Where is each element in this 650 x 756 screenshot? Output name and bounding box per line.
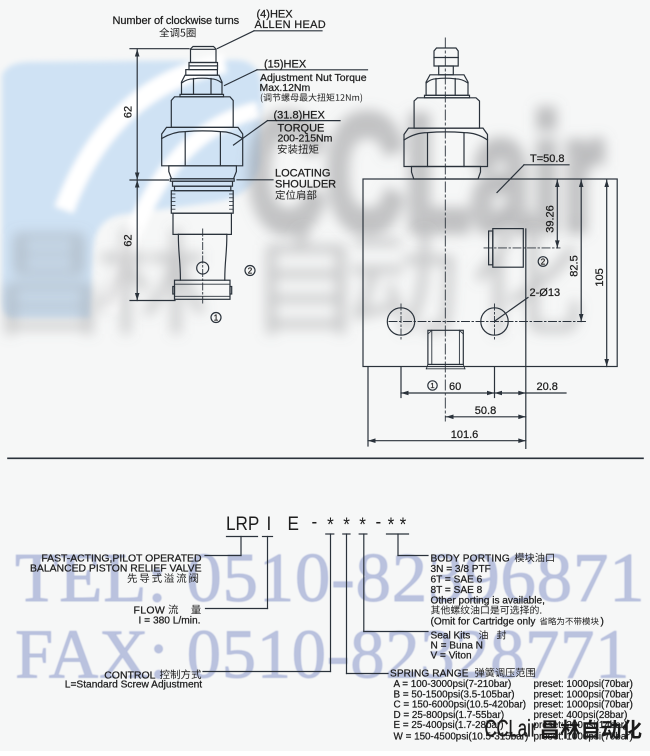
- svg-text:2-Ø13: 2-Ø13: [530, 287, 561, 299]
- svg-text:-: -: [375, 510, 381, 532]
- svg-text:Max.12Nm: Max.12Nm: [260, 82, 311, 94]
- svg-text:SHOULDER: SHOULDER: [275, 178, 336, 190]
- svg-text:BALANCED PISTON RELIEF VALVE: BALANCED PISTON RELIEF VALVE: [30, 564, 202, 575]
- svg-text:): ): [600, 616, 603, 627]
- svg-text:ALLEN HEAD: ALLEN HEAD: [255, 19, 326, 31]
- svg-text:LRP: LRP: [226, 512, 259, 534]
- svg-text:*: *: [400, 513, 407, 535]
- svg-text:I: I: [266, 512, 271, 534]
- svg-text:T=50.8: T=50.8: [530, 153, 565, 165]
- svg-text:1: 1: [214, 313, 219, 322]
- svg-text:62: 62: [123, 234, 135, 246]
- svg-text:L=Standard Screw Adjustment: L=Standard Screw Adjustment: [65, 679, 202, 690]
- svg-text:2: 2: [248, 266, 253, 275]
- svg-text:60: 60: [449, 381, 461, 393]
- svg-text:*: *: [343, 513, 350, 535]
- svg-text:SPRING RANGE: SPRING RANGE: [390, 668, 469, 679]
- svg-text:*: *: [359, 513, 366, 535]
- svg-text:(Omit for Cartridge only: (Omit for Cartridge only: [431, 616, 537, 627]
- svg-text:-: -: [312, 510, 318, 532]
- svg-text:82.5: 82.5: [569, 255, 581, 276]
- svg-text:3N = 3/8 PTF: 3N = 3/8 PTF: [431, 564, 491, 575]
- svg-text:(15)HEX: (15)HEX: [264, 58, 307, 70]
- svg-text:20.8: 20.8: [537, 381, 558, 393]
- svg-text:(31.8)HEX: (31.8)HEX: [274, 109, 326, 121]
- svg-text:105: 105: [594, 268, 606, 286]
- svg-text:200-215Nm: 200-215Nm: [278, 133, 333, 145]
- svg-text:6T = SAE 6: 6T = SAE 6: [431, 575, 483, 586]
- svg-text:50.8: 50.8: [475, 405, 496, 417]
- svg-text:101.6: 101.6: [451, 429, 479, 441]
- svg-text:2: 2: [541, 257, 546, 266]
- svg-text:62: 62: [123, 106, 135, 118]
- svg-text:Other porting is available,: Other porting is available,: [431, 595, 545, 606]
- svg-text:I = 380 L/min.: I = 380 L/min.: [139, 615, 201, 626]
- svg-text:E: E: [287, 512, 298, 534]
- svg-text:*: *: [388, 513, 395, 535]
- svg-text:1: 1: [430, 381, 434, 390]
- svg-text:V = Viton: V = Viton: [431, 651, 472, 662]
- svg-text:39.26: 39.26: [545, 205, 557, 233]
- svg-text:CCLair: CCLair: [485, 715, 537, 742]
- svg-text:Number of clockwise turns: Number of clockwise turns: [113, 15, 240, 27]
- svg-text:BODY PORTING: BODY PORTING: [431, 553, 510, 564]
- svg-text:*: *: [327, 513, 334, 535]
